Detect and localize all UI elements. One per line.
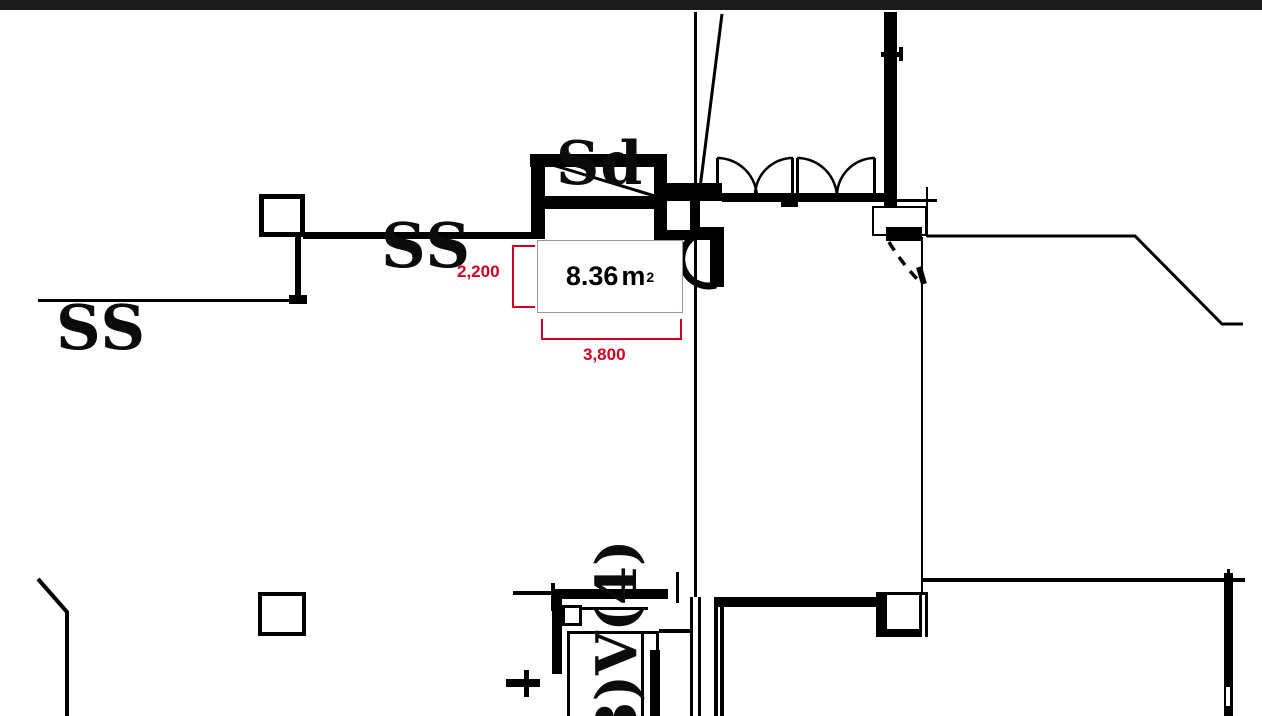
door-swing-arc: [797, 158, 837, 198]
boundary-line: [927, 236, 1243, 324]
d-glyph-top: [697, 227, 724, 235]
area-value: 8.36: [566, 261, 619, 292]
floor-plan-canvas: Sd SS SS 2,200 8.36m2 3,800 3)V(4): [0, 0, 1262, 716]
d-glyph-stem: [710, 227, 724, 287]
area-label-box: 8.36m2: [537, 240, 683, 313]
door-swing-arc: [717, 158, 757, 198]
area-unit: m: [621, 261, 645, 292]
shutter-label: Sd: [556, 134, 643, 194]
dashed-swing-end: [919, 267, 924, 284]
rotated-reference-label: 3)V(4): [585, 530, 649, 716]
ss-label-lower: SS: [56, 297, 146, 359]
area-unit-sup: 2: [646, 269, 654, 285]
door-swing-arc: [755, 158, 793, 198]
dimension-height-label: 2,200: [457, 263, 500, 280]
dashed-swing-arc: [889, 242, 921, 283]
dimension-bracket-width: [541, 319, 682, 340]
dimension-width-label: 3,800: [583, 346, 626, 363]
wall-diagonal: [38, 579, 67, 612]
door-swing-arc: [837, 158, 875, 198]
dimension-bracket-height: [512, 245, 535, 308]
leader-diagonal: [699, 14, 722, 196]
